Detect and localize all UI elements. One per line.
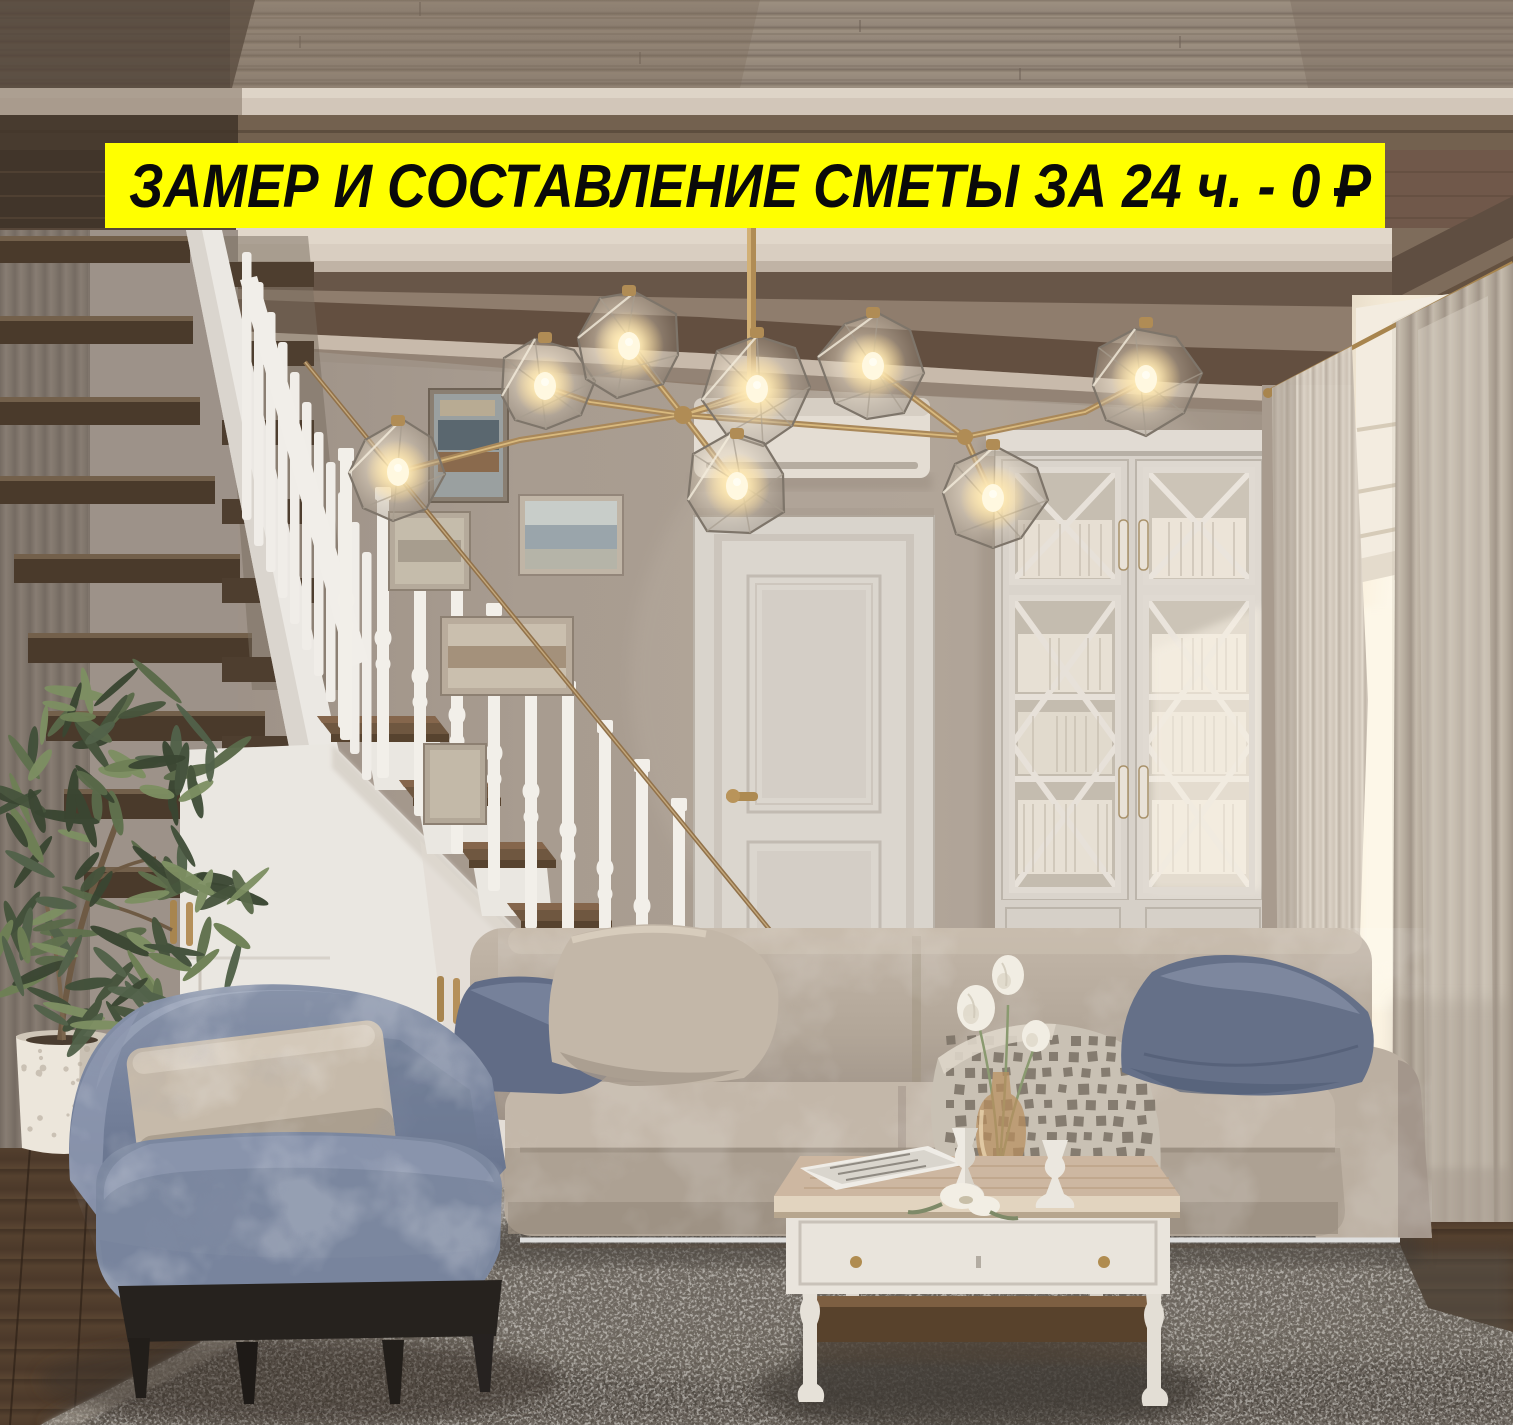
- svg-text:ЗАМЕР И СОСТАВЛЕНИЕ СМЕТЫ ЗА 2: ЗАМЕР И СОСТАВЛЕНИЕ СМЕТЫ ЗА 24 ч. - 0 Р: [129, 152, 1371, 220]
